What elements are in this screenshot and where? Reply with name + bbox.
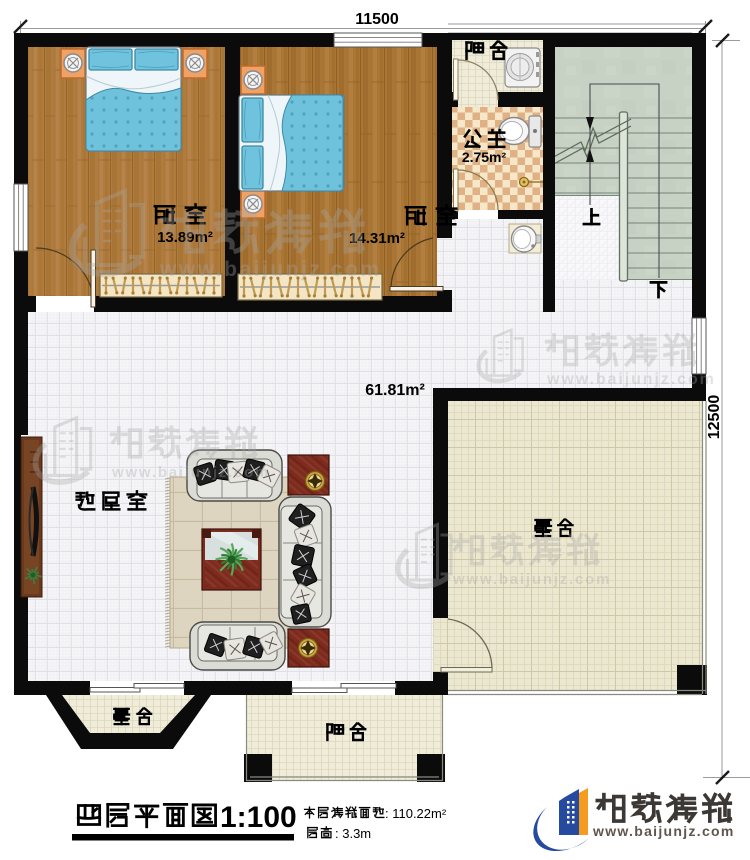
svg-text:www.baijunjz.com: www.baijunjz.com (592, 823, 735, 839)
svg-text:11500: 11500 (355, 11, 399, 28)
svg-text:: 110.22m²: : 110.22m² (385, 806, 447, 821)
svg-text:61.81m²: 61.81m² (365, 382, 425, 399)
svg-text:: 3.3m: : 3.3m (335, 826, 371, 841)
svg-text:2.75m²: 2.75m² (462, 149, 507, 165)
svg-text:12500: 12500 (706, 395, 723, 440)
svg-text:14.31m²: 14.31m² (349, 230, 405, 247)
svg-text:1:100: 1:100 (220, 801, 297, 834)
svg-text:www.baijunjz.com: www.baijunjz.com (452, 571, 611, 588)
svg-text:www.baijunjz.com: www.baijunjz.com (111, 464, 270, 481)
svg-text:www.baijunjz.com: www.baijunjz.com (159, 258, 382, 281)
svg-text:www.baijunjz.com: www.baijunjz.com (546, 371, 716, 388)
